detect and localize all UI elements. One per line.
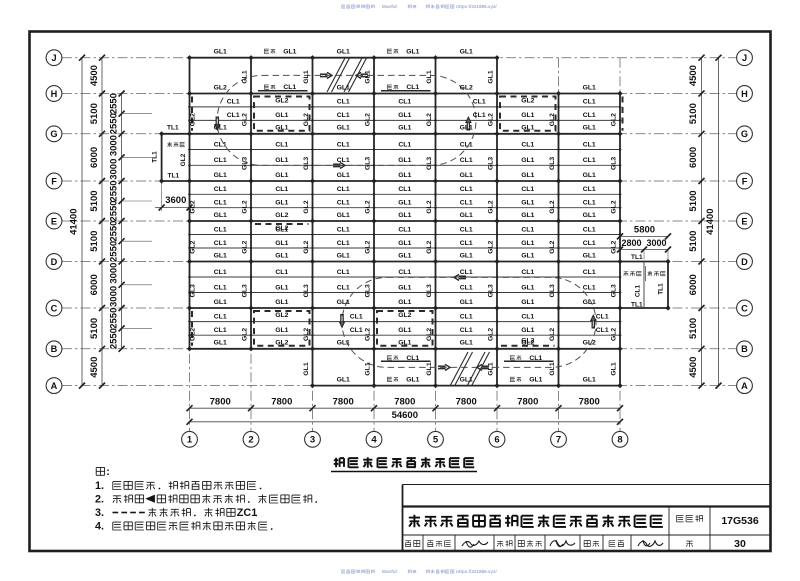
svg-text:GL1: GL1 (398, 112, 411, 119)
svg-text:4500: 4500 (89, 357, 100, 378)
svg-text:GL2: GL2 (426, 240, 433, 253)
svg-text:GL2: GL2 (488, 240, 495, 253)
svg-text:2550: 2550 (108, 241, 119, 262)
svg-text:GL1: GL1 (521, 327, 534, 334)
svg-text:GL1: GL1 (398, 340, 411, 347)
svg-text:GL2: GL2 (398, 312, 411, 319)
svg-text:H: H (51, 89, 58, 99)
svg-text:CL1: CL1 (583, 141, 596, 148)
svg-text:CL1: CL1 (337, 240, 350, 247)
svg-text:GL1: GL1 (521, 240, 534, 247)
svg-text:CL1: CL1 (337, 284, 350, 291)
svg-text:CL1: CL1 (460, 313, 473, 320)
svg-text:CL1: CL1 (398, 99, 411, 106)
svg-text:GL1: GL1 (460, 172, 473, 179)
svg-text:4500: 4500 (688, 357, 699, 378)
svg-text:2: 2 (248, 435, 253, 446)
svg-text:GL1: GL1 (583, 125, 596, 132)
svg-text:GL2: GL2 (214, 84, 227, 91)
svg-text:GL1: GL1 (460, 299, 473, 306)
svg-text:GL1: GL1 (583, 299, 596, 306)
svg-text:CL1: CL1 (583, 186, 596, 193)
svg-text:CL1: CL1 (460, 284, 473, 291)
svg-text:GL1: GL1 (398, 125, 411, 132)
svg-text:CL1: CL1 (521, 186, 534, 193)
svg-text:7800: 7800 (517, 397, 538, 408)
svg-text:GL1: GL1 (398, 327, 411, 334)
svg-text:CL1: CL1 (583, 284, 596, 291)
svg-text:CL1: CL1 (337, 226, 350, 233)
svg-text:GL1: GL1 (337, 212, 350, 219)
svg-text:CL1: CL1 (214, 157, 227, 164)
svg-text:3.: 3. (95, 507, 104, 519)
svg-text:CL1: CL1 (398, 186, 411, 193)
svg-text:GL1: GL1 (583, 84, 596, 91)
svg-text:B: B (741, 344, 748, 354)
svg-text:GL1: GL1 (529, 377, 542, 384)
svg-text:6000: 6000 (89, 147, 100, 168)
svg-text:4500: 4500 (688, 65, 699, 86)
svg-text:CL1: CL1 (337, 200, 350, 207)
svg-text:GL1: GL1 (275, 284, 288, 291)
svg-text:GL2: GL2 (365, 200, 372, 213)
svg-text:3000: 3000 (108, 263, 119, 284)
svg-text:GL1: GL1 (337, 84, 350, 91)
svg-text:CL1: CL1 (583, 112, 596, 119)
svg-text:H: H (741, 89, 748, 99)
svg-text:GL1: GL1 (583, 377, 596, 384)
svg-text:GL2: GL2 (275, 212, 288, 219)
svg-text:GL1: GL1 (365, 70, 372, 83)
svg-text:CL1: CL1 (521, 269, 534, 276)
svg-text:GL3: GL3 (488, 284, 495, 297)
svg-text:F: F (742, 176, 748, 186)
svg-text:CL1: CL1 (460, 141, 473, 148)
svg-text:E: E (741, 216, 747, 226)
svg-text:CL1: CL1 (398, 226, 411, 233)
svg-text:nttps://321886.xyz/: nttps://321886.xyz/ (456, 569, 497, 574)
svg-text:GL2: GL2 (426, 200, 433, 213)
svg-text:GL1: GL1 (214, 172, 227, 179)
svg-text:GL3: GL3 (365, 284, 372, 297)
svg-text::: : (106, 466, 110, 478)
svg-text:7800: 7800 (456, 397, 477, 408)
svg-text:GL1: GL1 (460, 49, 473, 56)
svg-text:41400: 41400 (69, 208, 80, 234)
svg-text:TL1: TL1 (152, 151, 159, 163)
svg-text:5100: 5100 (89, 190, 100, 211)
svg-text:2550: 2550 (108, 180, 119, 201)
svg-text:J: J (742, 53, 747, 63)
svg-text:30: 30 (734, 538, 746, 550)
svg-text:5800: 5800 (634, 225, 655, 236)
svg-text:CL1: CL1 (283, 84, 296, 91)
svg-text:4: 4 (371, 435, 377, 446)
svg-text:GL2: GL2 (303, 240, 310, 253)
svg-text:CL1: CL1 (596, 327, 609, 334)
svg-text:CL1: CL1 (583, 269, 596, 276)
svg-text:CL1: CL1 (460, 200, 473, 207)
svg-text:2.: 2. (95, 494, 104, 506)
svg-text:F: F (51, 176, 57, 186)
svg-text:4.: 4. (95, 521, 104, 533)
svg-text:GL1: GL1 (337, 125, 350, 132)
svg-text:3000: 3000 (646, 238, 666, 248)
svg-text:TL1: TL1 (168, 173, 180, 180)
svg-text:GL2: GL2 (365, 240, 372, 253)
svg-text:GL2: GL2 (242, 328, 249, 341)
svg-text:3: 3 (310, 435, 315, 446)
svg-text:GL2: GL2 (303, 200, 310, 213)
svg-text:1: 1 (187, 435, 193, 446)
svg-text:GL2: GL2 (242, 200, 249, 213)
svg-text:CL1: CL1 (214, 226, 227, 233)
svg-text:GL1: GL1 (521, 212, 534, 219)
svg-text:CL1: CL1 (337, 141, 350, 148)
svg-text:CL1: CL1 (214, 200, 227, 207)
svg-text:6000: 6000 (688, 147, 699, 168)
svg-text:GL2: GL2 (190, 240, 197, 253)
svg-text:GL2: GL2 (521, 98, 534, 105)
svg-text:GL1: GL1 (426, 70, 433, 83)
svg-text:GL1: GL1 (275, 157, 288, 164)
svg-text:GL2: GL2 (488, 328, 495, 341)
svg-text:GL1: GL1 (275, 112, 288, 119)
svg-text:GL1: GL1 (583, 212, 596, 219)
svg-text:CL1: CL1 (350, 313, 363, 320)
svg-text:GL2: GL2 (190, 328, 197, 341)
svg-text:GL3: GL3 (242, 157, 249, 170)
svg-text:CL1: CL1 (227, 99, 240, 106)
svg-text:GL1: GL1 (460, 377, 473, 384)
svg-text:CL1: CL1 (583, 200, 596, 207)
svg-text:GL1: GL1 (426, 362, 433, 375)
svg-text:GL1: GL1 (337, 377, 350, 384)
svg-text:ZC1: ZC1 (237, 507, 257, 519)
svg-text:GL1: GL1 (583, 172, 596, 179)
svg-text:5100: 5100 (688, 190, 699, 211)
svg-text:GL3: GL3 (549, 157, 556, 170)
svg-text:7800: 7800 (394, 397, 415, 408)
svg-text:GL2: GL2 (242, 113, 249, 126)
svg-text:GL2: GL2 (190, 113, 197, 126)
svg-text:CL1: CL1 (227, 112, 240, 119)
svg-text:GL3: GL3 (611, 284, 618, 297)
svg-text:GL3: GL3 (426, 157, 433, 170)
svg-text:3600: 3600 (165, 195, 186, 206)
svg-text:GL1: GL1 (549, 362, 556, 375)
svg-text:5100: 5100 (89, 318, 100, 339)
svg-text:CL1: CL1 (214, 313, 227, 320)
svg-text:B: B (51, 344, 58, 354)
svg-text:CL1: CL1 (583, 226, 596, 233)
svg-text:CL1: CL1 (529, 355, 542, 362)
svg-text:TL1: TL1 (658, 283, 665, 295)
svg-text:CL1: CL1 (337, 186, 350, 193)
svg-text:CL1: CL1 (275, 186, 288, 193)
svg-text:GL3: GL3 (303, 157, 310, 170)
svg-text:CL1: CL1 (398, 141, 411, 148)
svg-text:GL3: GL3 (611, 157, 618, 170)
svg-text:GL3: GL3 (190, 284, 197, 297)
svg-text:GL1: GL1 (275, 125, 288, 132)
svg-text:3000: 3000 (108, 135, 119, 156)
svg-text:CL1: CL1 (337, 269, 350, 276)
svg-text:GL1: GL1 (521, 284, 534, 291)
svg-text:TL1: TL1 (167, 125, 179, 132)
svg-text:TL1: TL1 (631, 302, 643, 309)
svg-text:GL1: GL1 (275, 200, 288, 207)
svg-text:2550: 2550 (108, 221, 119, 242)
svg-text:5100: 5100 (688, 231, 699, 252)
svg-text:CL1: CL1 (460, 157, 473, 164)
svg-text:GL2: GL2 (611, 240, 618, 253)
svg-text:CL1: CL1 (337, 157, 350, 164)
svg-text:2800: 2800 (621, 238, 641, 248)
svg-text:5100: 5100 (688, 318, 699, 339)
svg-text:CL1: CL1 (473, 112, 486, 119)
svg-text:GL1: GL1 (214, 252, 227, 259)
svg-text:CL1: CL1 (583, 240, 596, 247)
svg-text:GL2: GL2 (611, 200, 618, 213)
svg-text:CL1: CL1 (583, 99, 596, 106)
svg-text:GL1: GL1 (242, 70, 249, 83)
svg-text:7: 7 (556, 435, 561, 446)
svg-text:GL2: GL2 (242, 240, 249, 253)
svg-text:CL1: CL1 (460, 269, 473, 276)
svg-text:5100: 5100 (688, 103, 699, 124)
svg-text:GL1: GL1 (275, 299, 288, 306)
svg-text:CL1: CL1 (460, 186, 473, 193)
svg-text:GL2: GL2 (365, 328, 372, 341)
svg-text:GL2: GL2 (583, 340, 596, 347)
svg-text:GL2: GL2 (303, 328, 310, 341)
svg-text:54600: 54600 (392, 410, 418, 421)
svg-text:GL1: GL1 (460, 252, 473, 259)
svg-text:GL2: GL2 (488, 200, 495, 213)
svg-text:GL2: GL2 (460, 84, 473, 91)
svg-text:TL1: TL1 (631, 254, 643, 261)
svg-text:GL1: GL1 (398, 157, 411, 164)
svg-text:GL2: GL2 (365, 113, 372, 126)
svg-text:A: A (51, 381, 58, 391)
svg-text:CL1: CL1 (214, 240, 227, 247)
svg-text:G: G (741, 129, 748, 139)
svg-text:3000: 3000 (108, 286, 119, 307)
svg-text:GL3: GL3 (488, 157, 495, 170)
svg-text:GL1: GL1 (303, 70, 310, 83)
svg-text:GL2: GL2 (275, 312, 288, 319)
svg-text:CL1: CL1 (583, 157, 596, 164)
svg-text:CL1: CL1 (521, 226, 534, 233)
svg-text:CL1: CL1 (214, 141, 227, 148)
svg-text:GL1: GL1 (275, 172, 288, 179)
svg-text:GL1: GL1 (337, 49, 350, 56)
svg-text:C: C (51, 303, 58, 313)
svg-text:GL2: GL2 (549, 200, 556, 213)
svg-text:Manful: Manful (382, 4, 397, 9)
svg-text:41400: 41400 (705, 208, 716, 234)
svg-text:GL1: GL1 (303, 362, 310, 375)
svg-text:GL1: GL1 (398, 240, 411, 247)
svg-text:2550: 2550 (108, 113, 119, 134)
svg-text:GL1: GL1 (337, 340, 350, 347)
svg-text:GL1: GL1 (398, 200, 411, 207)
svg-text:GL2: GL2 (180, 153, 187, 166)
svg-text:CL1: CL1 (275, 141, 288, 148)
svg-text:J: J (51, 53, 56, 63)
svg-text:6000: 6000 (688, 274, 699, 295)
svg-text:A: A (741, 381, 748, 391)
svg-text:2550: 2550 (108, 308, 119, 329)
svg-text:GL1: GL1 (398, 172, 411, 179)
svg-text:CL1: CL1 (596, 313, 609, 320)
svg-text:CL1: CL1 (214, 186, 227, 193)
svg-text:GL1: GL1 (365, 362, 372, 375)
svg-text:GL1: GL1 (214, 212, 227, 219)
svg-text:GL1: GL1 (583, 252, 596, 259)
svg-text:GL1: GL1 (275, 327, 288, 334)
svg-text:D: D (51, 257, 58, 267)
svg-text:2550: 2550 (108, 328, 119, 349)
svg-text:Manful: Manful (382, 569, 397, 574)
svg-text:GL1: GL1 (460, 212, 473, 219)
svg-text:GL1: GL1 (460, 340, 473, 347)
svg-text:GL1: GL1 (337, 172, 350, 179)
svg-text:GL2: GL2 (275, 340, 288, 347)
svg-text:GL1: GL1 (521, 112, 534, 119)
svg-text:GL2: GL2 (426, 113, 433, 126)
svg-text:CL1: CL1 (406, 355, 419, 362)
svg-text:GL1: GL1 (521, 252, 534, 259)
svg-text:GL1: GL1 (283, 49, 296, 56)
svg-text:GL1: GL1 (214, 299, 227, 306)
svg-text:7800: 7800 (271, 397, 292, 408)
svg-text:GL1: GL1 (398, 252, 411, 259)
svg-text:GL1: GL1 (398, 212, 411, 219)
svg-text:C: C (741, 303, 748, 313)
svg-text:GL1: GL1 (275, 240, 288, 247)
svg-text:GL2: GL2 (549, 240, 556, 253)
svg-text:7800: 7800 (210, 397, 231, 408)
svg-text:CL1: CL1 (521, 313, 534, 320)
svg-text:GL3: GL3 (549, 284, 556, 297)
svg-text:4500: 4500 (89, 65, 100, 86)
svg-text:GL3: GL3 (365, 157, 372, 170)
svg-text:GL1: GL1 (460, 125, 473, 132)
svg-text:GL1: GL1 (275, 252, 288, 259)
svg-text:GL1: GL1 (398, 284, 411, 291)
svg-text:GL1: GL1 (521, 299, 534, 306)
svg-text:17G536: 17G536 (721, 515, 759, 527)
svg-text:GL2: GL2 (611, 113, 618, 126)
svg-text:5: 5 (433, 435, 439, 446)
svg-text:CL1: CL1 (275, 269, 288, 276)
svg-text:GL2: GL2 (303, 113, 310, 126)
svg-text:CL1: CL1 (473, 99, 486, 106)
svg-text:GL1: GL1 (521, 200, 534, 207)
svg-text:GL1: GL1 (488, 70, 495, 83)
svg-text:nttps://321886.xyz/: nttps://321886.xyz/ (456, 4, 497, 9)
svg-text:CL1: CL1 (337, 112, 350, 119)
svg-text:GL1: GL1 (488, 362, 495, 375)
svg-text:CL1: CL1 (214, 269, 227, 276)
svg-text:7800: 7800 (333, 397, 354, 408)
svg-text:6: 6 (494, 435, 499, 446)
svg-text:GL2: GL2 (190, 200, 197, 213)
svg-text:8: 8 (617, 435, 622, 446)
svg-text:5100: 5100 (89, 231, 100, 252)
svg-text:D: D (741, 257, 748, 267)
svg-text:CL1: CL1 (350, 327, 363, 334)
svg-text:GL1: GL1 (521, 172, 534, 179)
svg-text:CL1: CL1 (214, 284, 227, 291)
svg-text:GL1: GL1 (521, 125, 534, 132)
svg-text:GL3: GL3 (242, 284, 249, 297)
svg-text:G: G (50, 129, 57, 139)
svg-text:5100: 5100 (89, 103, 100, 124)
svg-text:CL1: CL1 (634, 284, 641, 297)
svg-text:6000: 6000 (89, 274, 100, 295)
svg-text:GL3: GL3 (303, 284, 310, 297)
svg-text:GL1: GL1 (406, 377, 419, 384)
svg-text:CL1: CL1 (460, 327, 473, 334)
svg-text:GL2: GL2 (521, 337, 534, 344)
svg-text:2550: 2550 (108, 93, 119, 114)
svg-text:GL2: GL2 (549, 113, 556, 126)
svg-text:GL1: GL1 (214, 125, 227, 132)
svg-text:2550: 2550 (108, 200, 119, 221)
svg-text:GL1: GL1 (337, 252, 350, 259)
svg-text:CL1: CL1 (337, 99, 350, 106)
svg-text:CL1: CL1 (214, 327, 227, 334)
svg-text:GL1: GL1 (611, 362, 618, 375)
svg-text:GL1: GL1 (398, 299, 411, 306)
svg-text:GL1: GL1 (406, 49, 419, 56)
svg-text:7800: 7800 (579, 397, 600, 408)
svg-text:GL1: GL1 (521, 157, 534, 164)
svg-text:E: E (51, 216, 57, 226)
svg-text:GL1: GL1 (337, 299, 350, 306)
svg-text:GL3: GL3 (426, 284, 433, 297)
svg-text:CL1: CL1 (521, 141, 534, 148)
svg-text:GL2: GL2 (488, 113, 495, 126)
svg-text:GL2: GL2 (549, 328, 556, 341)
svg-text:CL1: CL1 (398, 269, 411, 276)
svg-text:CL1: CL1 (460, 240, 473, 247)
svg-text:GL1: GL1 (214, 340, 227, 347)
svg-text:GL2: GL2 (275, 225, 288, 232)
svg-text:GL2: GL2 (611, 328, 618, 341)
svg-text:1.: 1. (95, 480, 104, 492)
svg-text:CL1: CL1 (406, 84, 419, 91)
svg-text:GL1: GL1 (214, 49, 227, 56)
svg-text:GL2: GL2 (426, 328, 433, 341)
svg-text:GL2: GL2 (275, 98, 288, 105)
svg-text:CL1: CL1 (460, 226, 473, 233)
svg-text:3000: 3000 (108, 159, 119, 180)
